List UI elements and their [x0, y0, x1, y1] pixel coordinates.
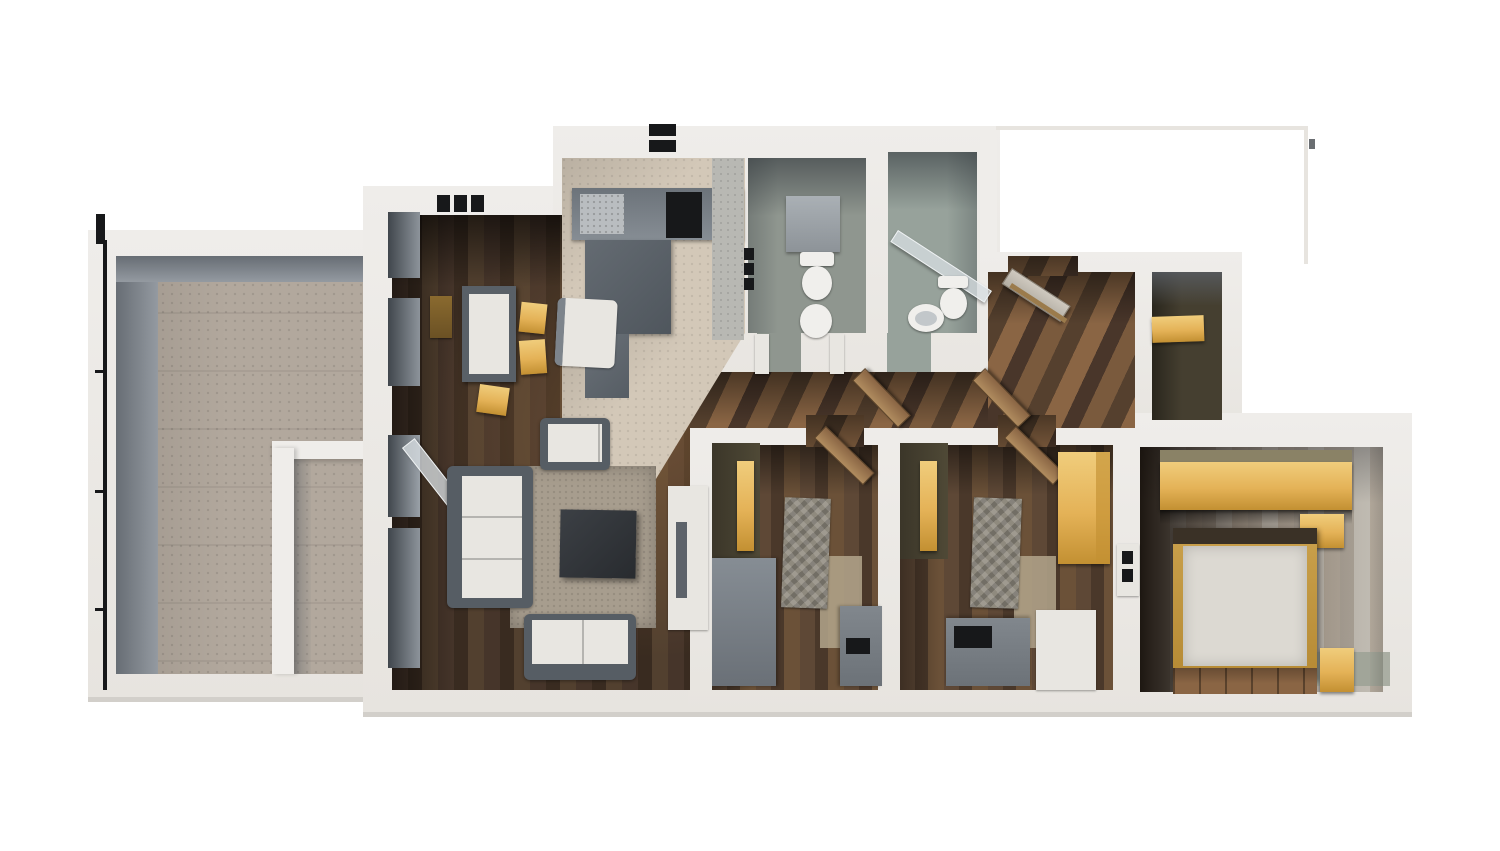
- building-bottom-shadow: [363, 712, 1412, 717]
- roof-antenna-mark: [1309, 139, 1315, 149]
- terrace-partition-wall: [272, 448, 294, 674]
- master-east-wall-shadow: [1370, 447, 1383, 692]
- dining-chair: [519, 339, 547, 375]
- sofa-cushions: [462, 476, 522, 598]
- kitchen-partition-wall-face: [712, 158, 744, 340]
- chimney-vent: [649, 140, 676, 152]
- bedroom2-wardrobe-side: [1096, 452, 1110, 564]
- dining-chair: [476, 384, 510, 416]
- master-switch: [1122, 551, 1133, 564]
- master-wardrobe: [1160, 462, 1352, 510]
- tv-panel: [676, 522, 687, 598]
- storage-floor: [1152, 272, 1222, 420]
- master-bed-headboard: [1173, 528, 1317, 544]
- master-switch: [1122, 569, 1133, 582]
- loveseat-cushions: [532, 620, 628, 664]
- master-bed-mattress: [1183, 546, 1307, 666]
- living-vent: [437, 195, 450, 212]
- cooktop: [666, 192, 702, 238]
- storage-shelf: [1152, 315, 1205, 343]
- dining-chair-shaded: [430, 296, 452, 338]
- bedroom1-cabinet: [712, 558, 776, 686]
- railing-post: [95, 490, 107, 493]
- bedroom2-printer: [954, 626, 992, 648]
- coffee-table: [559, 509, 636, 578]
- bedroom2-white-wardrobe: [1036, 610, 1096, 690]
- bedroom1-laptop: [846, 638, 870, 654]
- chimney-vent: [649, 124, 676, 136]
- living-window-1: [388, 212, 420, 278]
- master-nightstand: [1320, 648, 1354, 692]
- bathroom-door-threshold: [887, 333, 931, 372]
- toilet-tank: [800, 252, 834, 266]
- terrace-bottom-shadow: [88, 697, 365, 702]
- porch-side-wall: [980, 128, 997, 258]
- railing: [103, 240, 107, 690]
- bedroom2-bed: [970, 497, 1022, 609]
- living-vent: [454, 195, 467, 212]
- bidet: [800, 304, 832, 338]
- railing-corner-post: [96, 214, 105, 244]
- toilet: [802, 266, 832, 300]
- bedroom2-wardrobe-door: [920, 461, 937, 551]
- toilet-tank-2: [938, 276, 968, 288]
- wc-door-leaf-2: [830, 334, 844, 374]
- terrace-partition-shadow: [294, 459, 311, 674]
- bedroom1-bed: [781, 497, 831, 609]
- living-vent: [471, 195, 484, 212]
- railing-post: [95, 608, 107, 611]
- kitchen-sink: [580, 194, 624, 234]
- floor-plan-render: [0, 0, 1500, 851]
- dining-chair: [519, 302, 548, 335]
- bedroom1-wardrobe-door: [737, 461, 754, 551]
- living-window-2: [388, 298, 420, 386]
- railing-post: [95, 370, 107, 373]
- wc-cabinet: [786, 196, 840, 252]
- master-bed-drawers: [1173, 668, 1317, 694]
- terrace-left-wall-face: [116, 256, 158, 674]
- armchair-dining: [554, 297, 617, 368]
- armchair-cushion: [548, 424, 602, 462]
- dining-table-top: [469, 294, 509, 374]
- porch-roof-edge-top: [996, 126, 1308, 130]
- washbasin-bowl: [915, 311, 937, 326]
- porch-roof-edge-right: [1304, 126, 1308, 264]
- living-window-3: [388, 528, 420, 668]
- toilet-2: [940, 288, 967, 319]
- wc-door-leaf: [755, 334, 769, 374]
- terrace-top-wall-face: [116, 256, 363, 282]
- tv-stand: [668, 486, 708, 630]
